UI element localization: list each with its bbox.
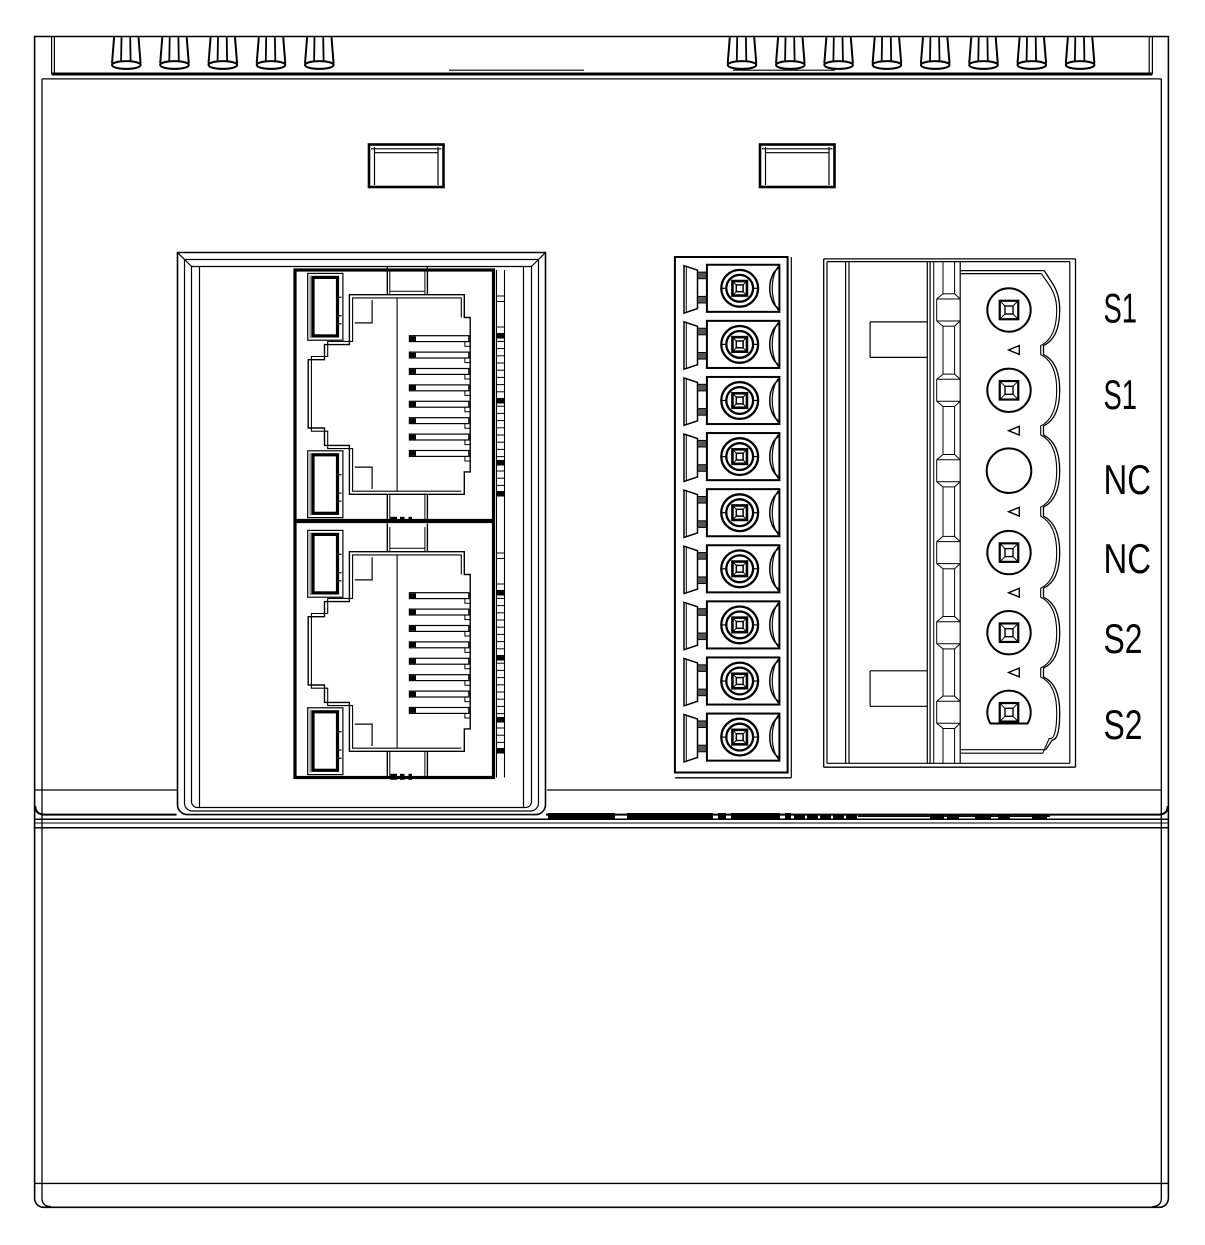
svg-text:S1: S1 — [1104, 285, 1138, 332]
svg-text:NC: NC — [1104, 456, 1152, 503]
svg-text:S2: S2 — [1104, 701, 1143, 748]
svg-text:S1: S1 — [1104, 371, 1138, 418]
svg-text:NC: NC — [1104, 535, 1152, 582]
svg-text:S2: S2 — [1104, 615, 1143, 662]
